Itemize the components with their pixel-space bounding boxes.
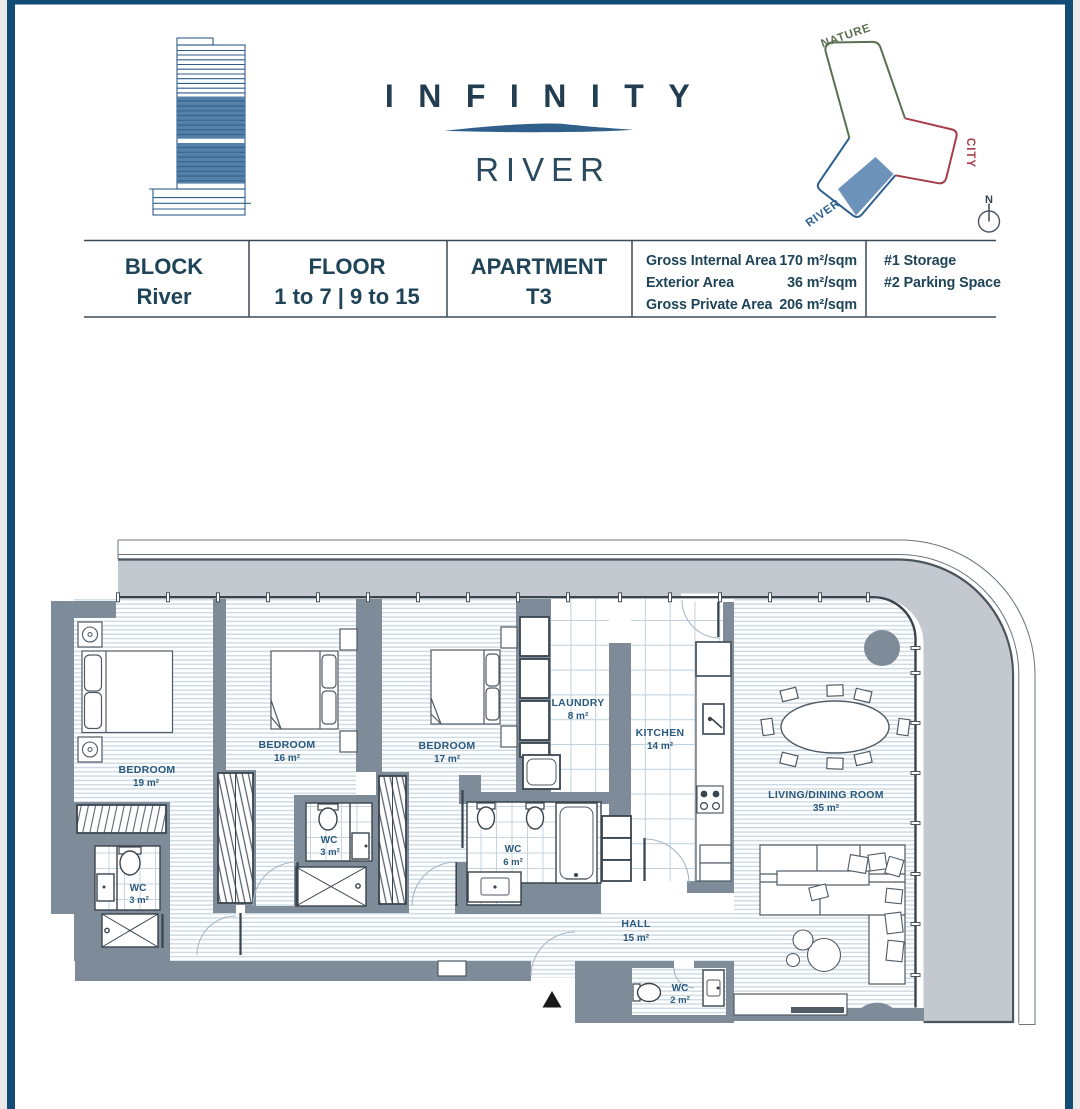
svg-text:WC: WC (130, 883, 147, 894)
svg-text:WC: WC (672, 983, 689, 994)
svg-text:19 m²: 19 m² (133, 778, 160, 789)
svg-text:Gross Private Area: Gross Private Area (646, 297, 774, 313)
svg-text:WC: WC (505, 844, 522, 855)
svg-text:RIVER: RIVER (475, 151, 611, 188)
svg-text:3 m²: 3 m² (129, 895, 149, 906)
svg-text:BEDROOM: BEDROOM (419, 740, 476, 752)
svg-text:206 m²/sqm: 206 m²/sqm (779, 297, 857, 313)
svg-text:Exterior Area: Exterior Area (646, 275, 735, 291)
svg-text:WC: WC (321, 835, 338, 846)
svg-text:FLOOR: FLOOR (309, 254, 386, 279)
svg-text:1 to 7 | 9 to 15: 1 to 7 | 9 to 15 (274, 284, 420, 309)
svg-text:170 m²/sqm: 170 m²/sqm (779, 253, 857, 269)
svg-text:15 m²: 15 m² (623, 933, 650, 944)
svg-text:8 m²: 8 m² (568, 711, 589, 722)
svg-text:#2 Parking Space: #2 Parking Space (884, 275, 1001, 291)
svg-text:T3: T3 (526, 284, 552, 309)
svg-text:KITCHEN: KITCHEN (636, 727, 685, 739)
svg-text:35 m²: 35 m² (813, 803, 840, 814)
svg-text:6 m²: 6 m² (503, 857, 523, 868)
svg-text:#1 Storage: #1 Storage (884, 253, 956, 269)
svg-text:2 m²: 2 m² (670, 995, 690, 1006)
svg-text:36 m²/sqm: 36 m²/sqm (787, 275, 857, 291)
svg-text:BEDROOM: BEDROOM (119, 764, 176, 776)
svg-text:BEDROOM: BEDROOM (259, 739, 316, 751)
svg-text:Gross Internal Area: Gross Internal Area (646, 253, 777, 269)
svg-text:CITY: CITY (964, 138, 976, 168)
svg-text:16 m²: 16 m² (274, 753, 301, 764)
svg-text:River: River (136, 284, 191, 309)
svg-text:LAUNDRY: LAUNDRY (551, 697, 604, 709)
svg-text:INFINITY: INFINITY (385, 78, 714, 114)
svg-text:APARTMENT: APARTMENT (471, 254, 608, 279)
svg-text:BLOCK: BLOCK (125, 254, 203, 279)
svg-text:HALL: HALL (621, 918, 650, 930)
svg-text:17 m²: 17 m² (434, 754, 461, 765)
svg-text:14 m²: 14 m² (647, 741, 674, 752)
svg-text:3 m²: 3 m² (320, 847, 340, 858)
svg-text:LIVING/DINING ROOM: LIVING/DINING ROOM (768, 789, 884, 801)
svg-text:N: N (985, 194, 993, 206)
